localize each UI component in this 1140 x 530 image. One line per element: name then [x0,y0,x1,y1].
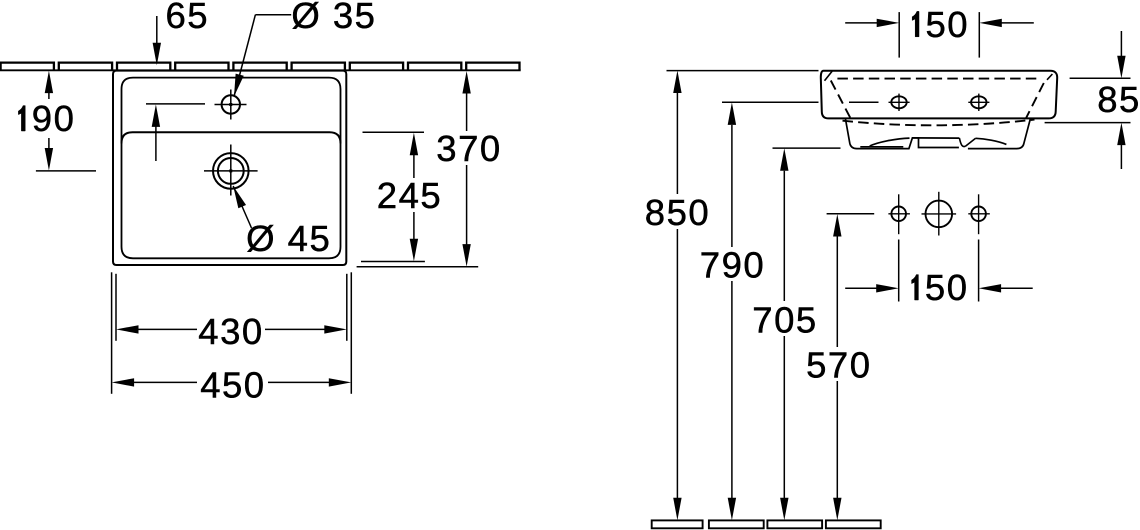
svg-text:570: 570 [806,345,871,386]
svg-text:245: 245 [377,175,442,216]
svg-text:450: 450 [200,365,265,406]
svg-text:Ø 35: Ø 35 [291,0,376,36]
svg-text:430: 430 [198,311,263,352]
svg-text:50: 50 [926,4,970,45]
svg-text:85: 85 [1097,79,1140,120]
svg-text:65: 65 [165,0,209,36]
svg-text:790: 790 [700,245,765,286]
svg-text:705: 705 [752,300,817,341]
svg-text:90: 90 [32,98,76,139]
svg-text:370: 370 [436,128,501,169]
svg-text:850: 850 [645,192,710,233]
svg-text:Ø 45: Ø 45 [246,218,331,259]
svg-text:50: 50 [925,267,969,308]
